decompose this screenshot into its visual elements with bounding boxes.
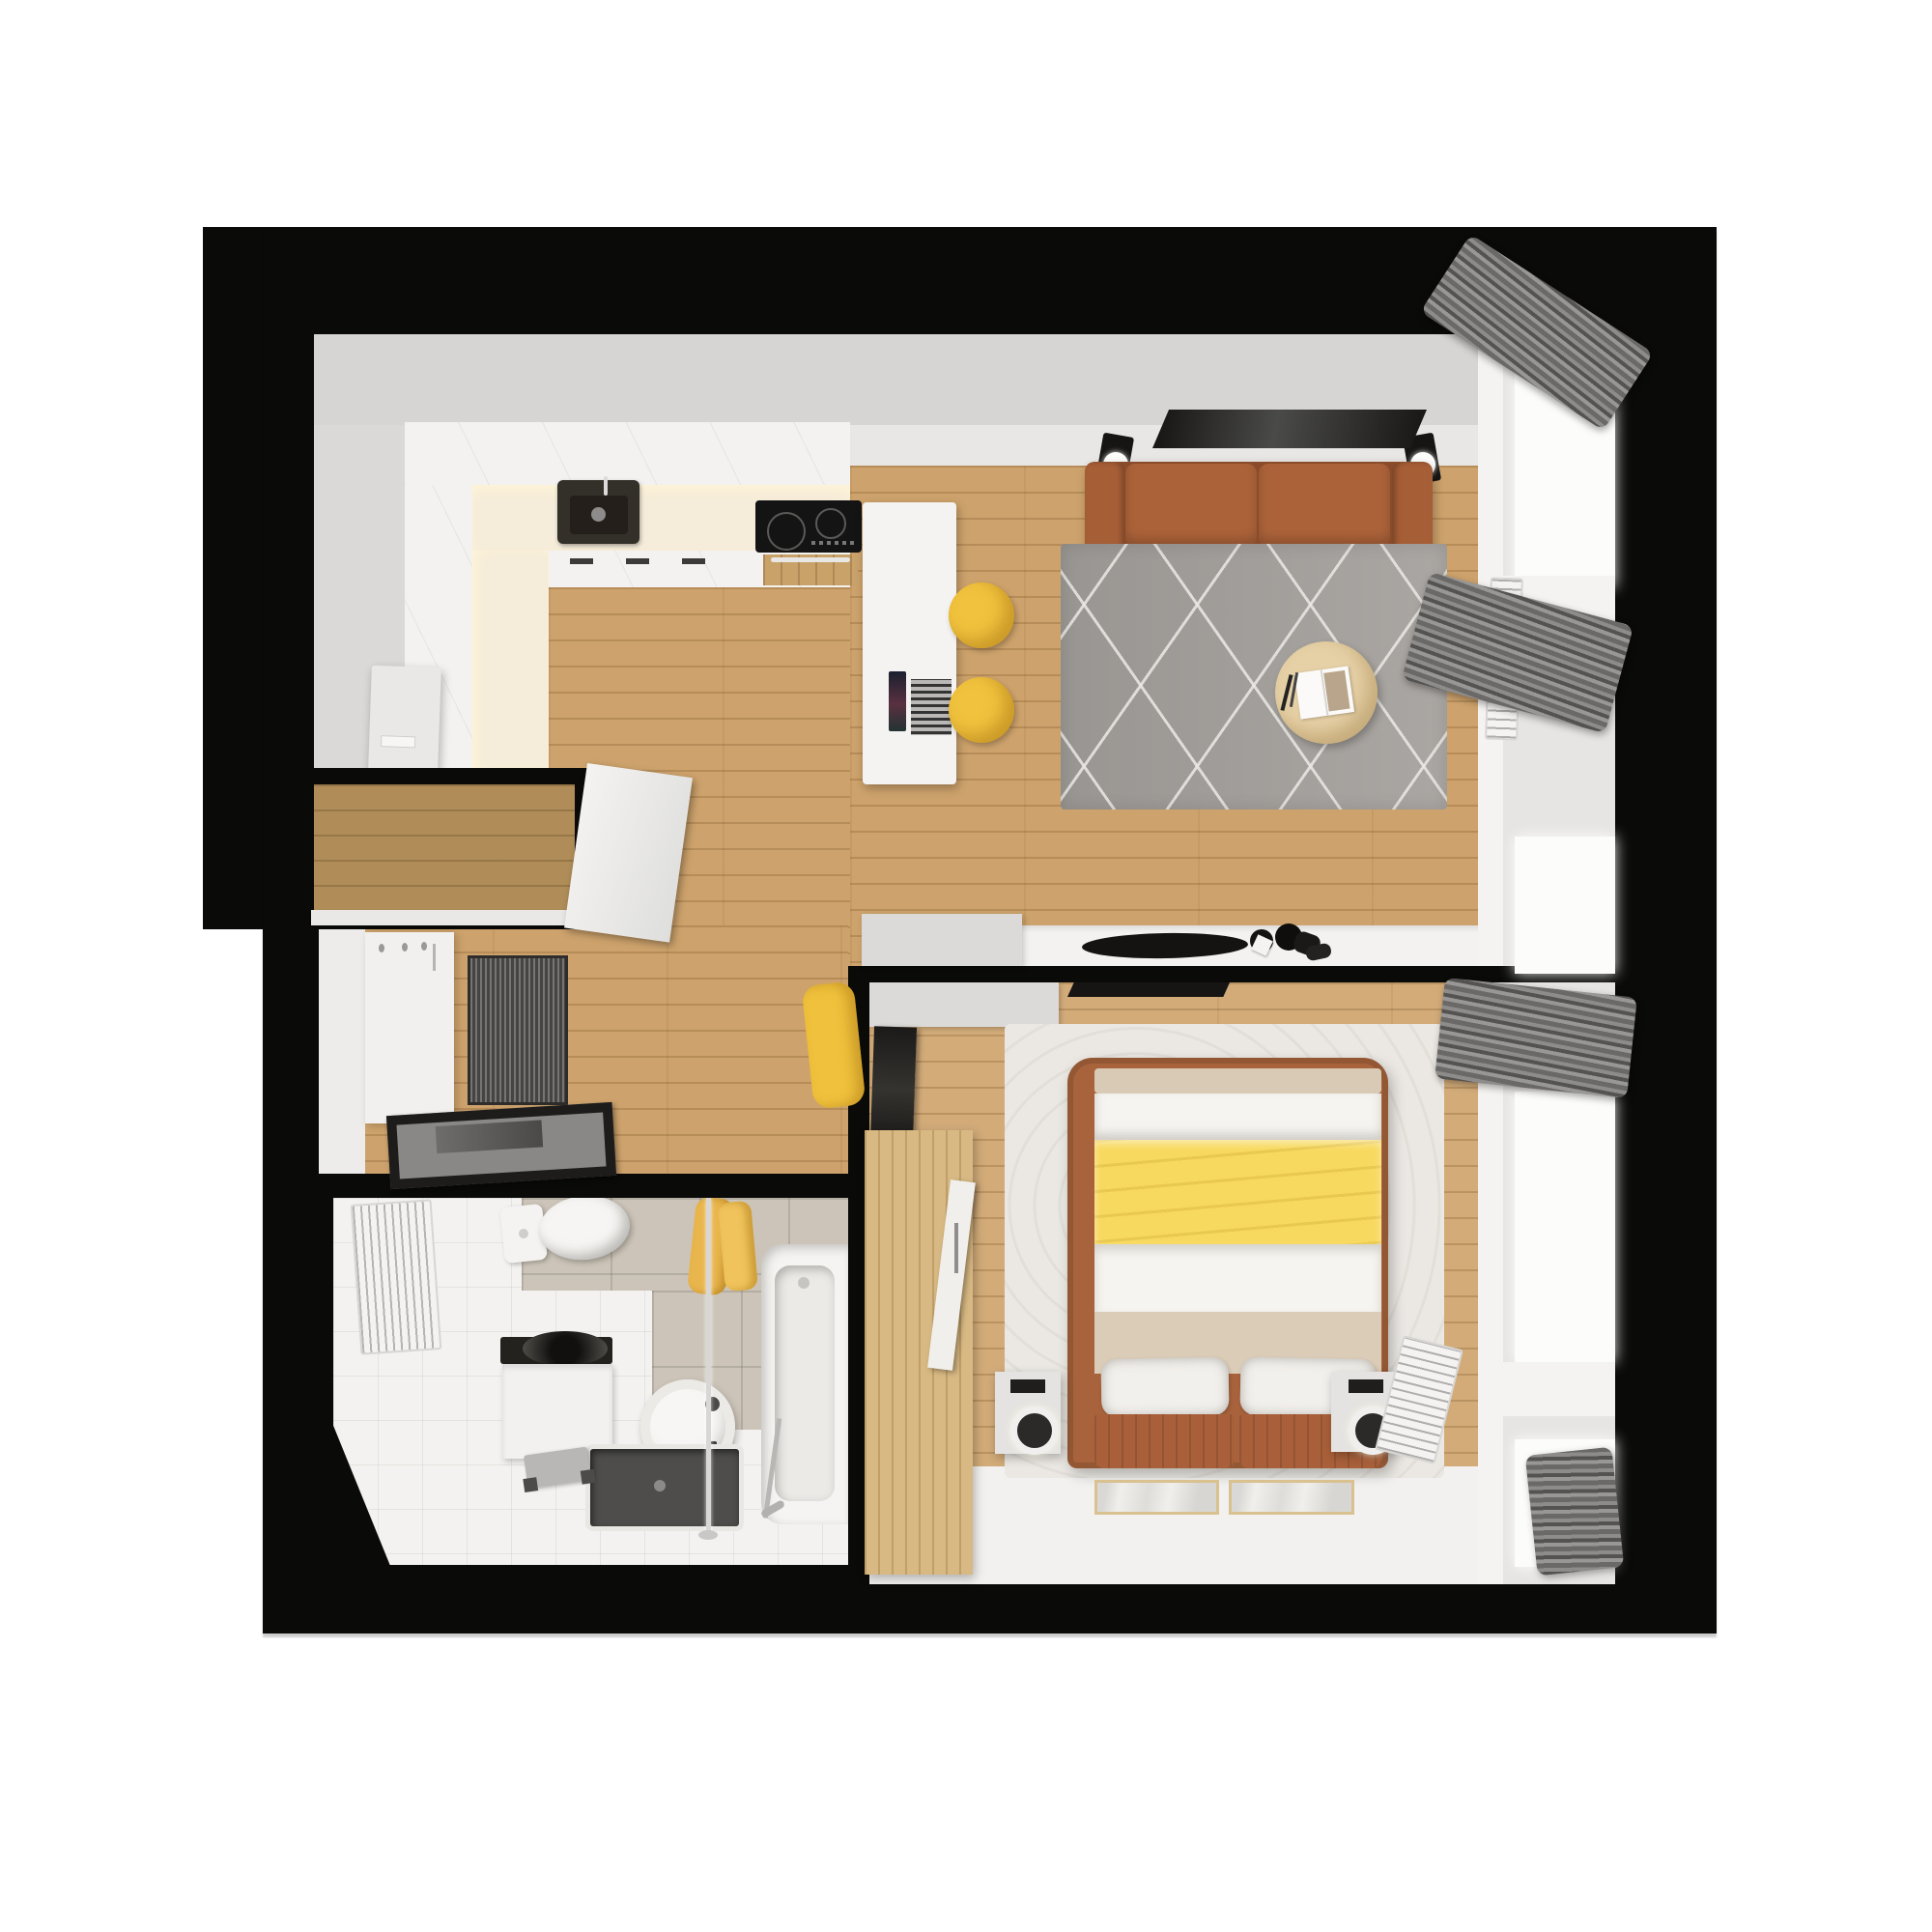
bedroom-window-mullion [1503, 1362, 1615, 1416]
stool-leg [523, 1477, 538, 1492]
bed-sheet-top [1094, 1094, 1381, 1140]
laptop-screen [889, 671, 906, 731]
cooktop-controls [811, 541, 854, 545]
bedroom-wall-tv [1067, 982, 1230, 997]
kitchen-island [863, 502, 956, 784]
bathtub [761, 1244, 848, 1524]
burner-large [767, 512, 806, 551]
coat-hook-hanging [433, 944, 436, 971]
bar-stool-2 [949, 677, 1014, 743]
bed-yellow-blanket [1094, 1140, 1381, 1244]
tv-console [869, 982, 1059, 1027]
doormat [468, 955, 568, 1105]
bathtub-basin [775, 1265, 835, 1501]
coat-rack-panel [365, 932, 454, 1123]
sofa-back-cushion-right [1259, 464, 1390, 547]
washer-round-basin [523, 1331, 608, 1366]
living-room-tv [1152, 410, 1427, 448]
refrigerator-appliance [368, 666, 441, 772]
floor-mirror [386, 1102, 616, 1189]
shower-drain [654, 1480, 666, 1492]
rail-base [698, 1530, 718, 1540]
bathroom-radiator [351, 1199, 442, 1354]
stool-leg [581, 1469, 596, 1485]
marble-floor-mat-right [1229, 1480, 1354, 1515]
burner-small [815, 508, 846, 539]
kitchen-countertop-left [472, 551, 549, 773]
cabinet-handle [570, 558, 593, 564]
leaning-tv [870, 1026, 917, 1141]
entry-door [314, 784, 575, 913]
magazine [1294, 666, 1354, 719]
nightstand-slot [1010, 1379, 1045, 1393]
marble-floor-mat-left [1094, 1480, 1219, 1515]
kitchen-upper-cabinets-top [405, 422, 850, 485]
laptop [889, 669, 947, 733]
bed-headboard-strip [1094, 1068, 1381, 1094]
cabinet-handle [626, 558, 649, 564]
hallway-left-wall [319, 929, 365, 1174]
shower-tray [585, 1444, 744, 1531]
bedroom-corner-curtain [1525, 1447, 1625, 1577]
magazine-photo [1323, 670, 1350, 712]
bedroom-window-pane-top [1515, 1092, 1615, 1362]
toilet-button [519, 1229, 529, 1239]
oven-handle [771, 557, 850, 562]
exterior-wall-left-step [203, 227, 263, 929]
bedroom-curtain [1435, 978, 1637, 1098]
coat-hook [402, 943, 408, 952]
bed-pillow-left [1100, 1357, 1229, 1417]
shower-glass-rail [706, 1198, 711, 1538]
appliance-vent [381, 735, 415, 748]
sink-faucet [604, 476, 608, 496]
coat-hook [421, 942, 427, 951]
coat-hook [379, 944, 384, 952]
mirror-reflection [436, 1120, 544, 1153]
bathtub-drain [798, 1277, 810, 1289]
kitchen-sink [557, 480, 639, 544]
door-threshold [311, 910, 601, 925]
living-room-rug [1061, 544, 1447, 810]
headboard-cushion-left [1094, 1414, 1235, 1468]
induction-cooktop [755, 500, 862, 553]
cabinet-handle [682, 558, 705, 564]
table-lamp [1010, 1406, 1059, 1455]
sofa-back-cushion-left [1125, 464, 1257, 547]
wardrobe-handle [954, 1223, 958, 1273]
bar-stool-1 [949, 582, 1014, 648]
living-window-pane-bottom [1515, 837, 1615, 974]
bathroom [333, 1198, 848, 1565]
floor-plan-scene [0, 0, 1932, 1932]
sink-drain [591, 507, 606, 522]
nightstand-slot [1349, 1379, 1383, 1393]
nightstand-left [995, 1372, 1061, 1454]
gray-cabinet [862, 914, 1022, 966]
bed-sheet-bottom [1094, 1244, 1381, 1312]
